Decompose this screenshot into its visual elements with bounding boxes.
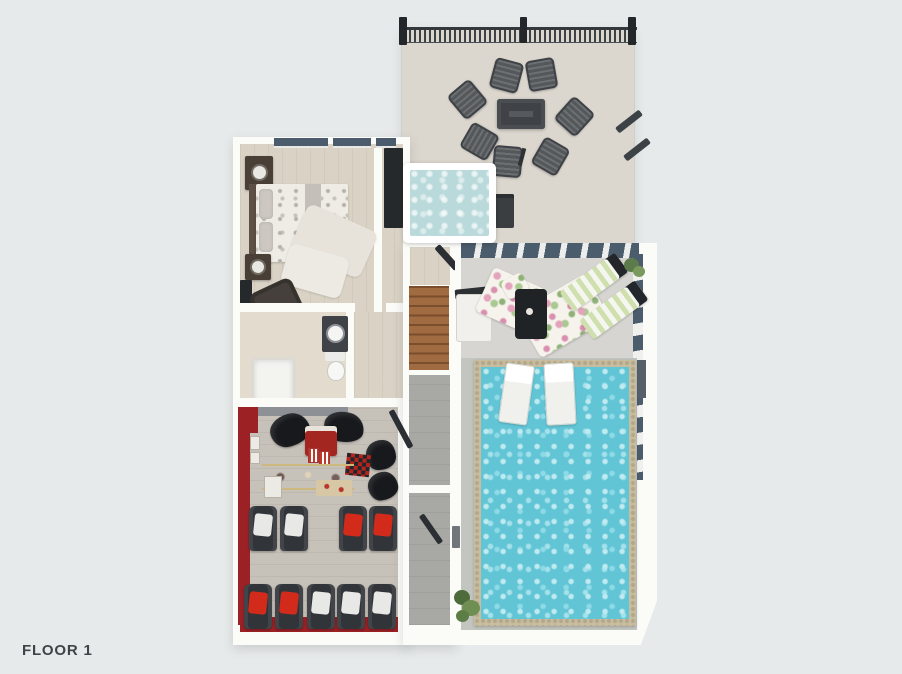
theater-red-patch xyxy=(248,407,258,433)
wardrobe xyxy=(384,148,403,228)
interior-wall xyxy=(405,485,450,493)
wall-poster xyxy=(250,436,260,450)
hot-tub xyxy=(403,163,496,243)
floor-plan-viewer: FLOOR 1 xyxy=(0,0,902,674)
hot-tub-water xyxy=(410,170,489,236)
mini-fridge xyxy=(264,476,282,498)
interior-wall xyxy=(233,303,355,312)
bedroom-window xyxy=(333,138,371,148)
fence-post xyxy=(628,17,636,45)
wall-poster xyxy=(250,452,260,464)
fence-post xyxy=(520,17,527,43)
sink xyxy=(326,324,345,343)
table-lamp xyxy=(250,259,266,275)
theater-seat xyxy=(244,584,272,629)
fence-post xyxy=(399,17,407,45)
staircase xyxy=(409,286,449,370)
bed-pillow xyxy=(259,222,273,252)
table-decor xyxy=(526,308,533,315)
interior-wall xyxy=(233,398,410,407)
table-lamp xyxy=(251,164,268,181)
theater-seat xyxy=(280,506,308,551)
in-pool-lounger xyxy=(543,362,576,425)
rocking-chair xyxy=(525,57,559,93)
theater-seat xyxy=(337,584,365,629)
theater-seat xyxy=(307,584,335,629)
toilet xyxy=(327,361,345,381)
inner-hallway-floor xyxy=(354,312,403,407)
theater-seat xyxy=(369,506,397,551)
toilet xyxy=(325,352,345,361)
theater-seat xyxy=(275,584,303,629)
theater-seat xyxy=(249,506,277,551)
snack-counter xyxy=(316,480,352,496)
theater-seat xyxy=(339,506,367,551)
bed-pillow xyxy=(259,189,273,219)
grill xyxy=(493,194,514,228)
bedroom-window xyxy=(274,138,328,148)
floor-label: FLOOR 1 xyxy=(22,642,93,659)
popcorn-box xyxy=(308,448,319,463)
hallway-floor xyxy=(409,375,450,625)
poolside-plant xyxy=(456,610,469,622)
deck-railing-fence xyxy=(399,27,637,43)
theater-seat xyxy=(368,584,396,629)
interior-wall xyxy=(374,148,382,312)
potted-plant xyxy=(633,266,645,277)
fire-pit-table xyxy=(497,99,545,129)
utility-unit xyxy=(452,526,460,548)
bedroom-window xyxy=(376,138,396,148)
